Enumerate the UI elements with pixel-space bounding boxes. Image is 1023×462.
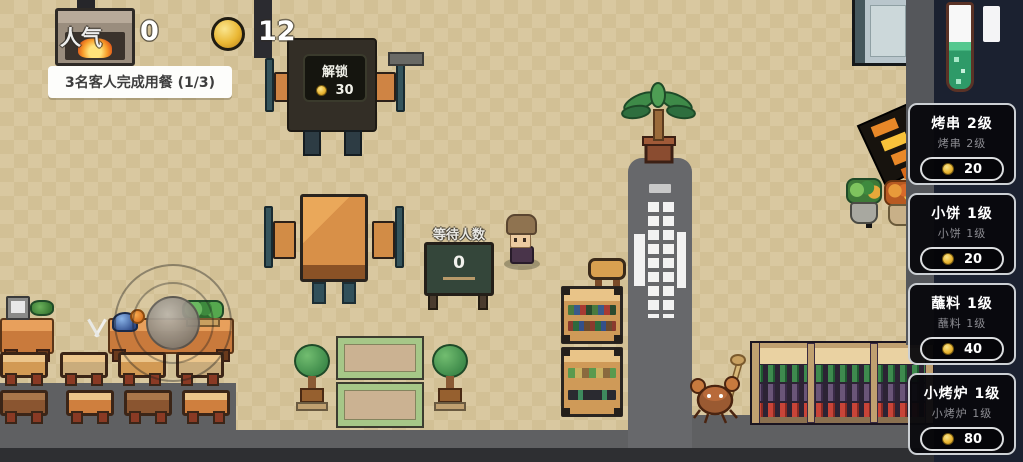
table-leg bbox=[342, 282, 356, 304]
upgrade-title: 蘸料 1级 bbox=[910, 293, 1014, 313]
upgrade-subtitle: 小饼 1级 bbox=[910, 225, 1014, 241]
shelf-post bbox=[614, 348, 622, 356]
upgrade-buy-button[interactable]: 40 bbox=[920, 337, 1004, 361]
upgrade-cost: 20 bbox=[964, 162, 982, 177]
window-pane-column bbox=[648, 202, 659, 318]
shelf-post bbox=[562, 348, 570, 356]
upgrade-buy-button[interactable]: 80 bbox=[920, 427, 1004, 451]
player-eye bbox=[514, 238, 517, 242]
shelf bbox=[561, 347, 623, 417]
shelf-rail bbox=[752, 417, 933, 423]
shelf-post bbox=[870, 343, 878, 423]
floor-edge-strip bbox=[0, 448, 934, 462]
game-viewport: 解锁 30 等待人数 0 bbox=[0, 0, 1023, 462]
joystick-knob[interactable] bbox=[146, 296, 200, 350]
shelf-post bbox=[614, 287, 622, 295]
vial-bubble bbox=[961, 69, 965, 73]
table bbox=[0, 352, 48, 378]
chair-back bbox=[395, 206, 404, 268]
coin-icon bbox=[942, 253, 954, 265]
notification-banner: 3名客人完成用餐 (1/3) bbox=[48, 66, 232, 98]
popularity-value: 0 bbox=[140, 16, 159, 47]
shelf-post bbox=[614, 335, 622, 343]
shelf-post bbox=[614, 408, 622, 416]
shelf-post bbox=[752, 343, 760, 423]
unlock-cost: 30 bbox=[335, 83, 353, 98]
bottle-row-green bbox=[756, 365, 929, 382]
potted-plant-bush bbox=[294, 344, 330, 378]
upgrade-cost: 80 bbox=[964, 432, 982, 447]
vial-bubble bbox=[954, 57, 959, 62]
locked-table-leg bbox=[344, 130, 362, 156]
mat-inner bbox=[344, 390, 416, 420]
corridor bbox=[628, 158, 692, 462]
coin-icon bbox=[942, 433, 954, 445]
counter bbox=[0, 318, 54, 354]
vent bbox=[388, 52, 424, 66]
upgrade-cost: 20 bbox=[964, 252, 982, 267]
waiting-label: 等待人数 bbox=[422, 224, 496, 243]
shelf-items bbox=[568, 321, 616, 331]
upgrade-cost: 40 bbox=[964, 342, 982, 357]
green-mat bbox=[336, 336, 424, 380]
unlock-sign[interactable]: 解锁 30 bbox=[303, 54, 367, 102]
unlock-label: 解锁 bbox=[305, 61, 365, 80]
shelf-items bbox=[568, 390, 616, 400]
upgrade-title: 小烤炉 1级 bbox=[910, 383, 1014, 403]
upgrade-buy-button[interactable]: 20 bbox=[920, 247, 1004, 271]
crab-critter bbox=[686, 352, 756, 430]
upgrade-panel-zhanliao[interactable]: 蘸料 1级 蘸料 1级 40 bbox=[908, 283, 1016, 365]
table bbox=[0, 390, 48, 416]
window-side-pane bbox=[634, 234, 645, 286]
chair-seat bbox=[372, 221, 395, 259]
shelf-back-panel bbox=[756, 347, 929, 364]
coin-icon bbox=[316, 85, 327, 96]
wall-tag bbox=[649, 184, 671, 193]
popularity-label: 人气 bbox=[60, 22, 102, 52]
window-pane-column bbox=[663, 202, 674, 318]
chair-back bbox=[264, 206, 273, 268]
greens-basket bbox=[30, 300, 54, 316]
coins-value: 12 bbox=[258, 16, 296, 47]
coin-icon bbox=[211, 17, 245, 51]
progress-vial bbox=[946, 2, 974, 92]
mat-inner bbox=[344, 344, 416, 372]
table bbox=[66, 390, 114, 416]
basket-pot bbox=[850, 202, 878, 224]
chalk-smudge bbox=[443, 277, 475, 280]
upgrade-subtitle: 蘸料 1级 bbox=[910, 315, 1014, 331]
window-side-pane bbox=[677, 232, 686, 288]
player-hair bbox=[506, 214, 537, 235]
vial-bubble bbox=[956, 79, 961, 84]
chair-back bbox=[396, 58, 405, 112]
plant-pot bbox=[300, 388, 324, 403]
plant-trunk bbox=[308, 376, 316, 388]
table bbox=[124, 390, 172, 416]
potted-plant-bush bbox=[432, 344, 468, 378]
shelf-post bbox=[562, 408, 570, 416]
indicator-bar bbox=[983, 6, 1000, 42]
waiting-board: 0 bbox=[424, 242, 494, 296]
plant-trunk bbox=[446, 376, 454, 388]
player-eye bbox=[523, 238, 526, 242]
waiting-count: 0 bbox=[427, 253, 491, 273]
shelf-post bbox=[562, 335, 570, 343]
table bbox=[182, 390, 230, 416]
shelf-items bbox=[568, 305, 616, 315]
fruit-basket-green bbox=[846, 178, 882, 204]
fridge-side bbox=[855, 0, 865, 63]
stool bbox=[588, 258, 626, 280]
upgrade-panel-xiaokaolu[interactable]: 小烤炉 1级 小烤炉 1级 80 bbox=[908, 373, 1016, 455]
shelf-post bbox=[807, 343, 815, 423]
table-leg bbox=[312, 282, 326, 304]
bottle-row-dark bbox=[756, 384, 929, 401]
upgrade-subtitle: 烤串 2级 bbox=[910, 135, 1014, 151]
locked-table-leg bbox=[303, 130, 321, 156]
table bbox=[60, 352, 108, 378]
green-mat bbox=[336, 382, 424, 428]
coin-icon bbox=[942, 343, 954, 355]
upgrade-panel-xiaobing[interactable]: 小饼 1级 小饼 1级 20 bbox=[908, 193, 1016, 275]
plant-base bbox=[296, 402, 328, 411]
plant-base bbox=[434, 402, 466, 411]
chair-seat bbox=[273, 221, 296, 259]
upgrade-subtitle: 小烤炉 1级 bbox=[910, 405, 1014, 421]
upgrade-buy-button[interactable]: 20 bbox=[920, 157, 1004, 181]
dining-table-apron bbox=[303, 265, 365, 279]
palm-tree bbox=[618, 82, 696, 170]
fridge-door bbox=[870, 5, 906, 57]
player-body bbox=[510, 246, 534, 264]
chair-back bbox=[265, 58, 274, 112]
upgrade-panel-kaochuan[interactable]: 烤串 2级 烤串 2级 20 bbox=[908, 103, 1016, 185]
coin-icon bbox=[942, 163, 954, 175]
shelf-items bbox=[568, 368, 616, 378]
shelf-post bbox=[562, 287, 570, 295]
plant-pot bbox=[438, 388, 462, 403]
fridge bbox=[852, 0, 912, 66]
shelf bbox=[561, 286, 623, 344]
upgrade-title: 烤串 2级 bbox=[910, 113, 1014, 133]
monitor-screen bbox=[11, 301, 25, 313]
upgrade-title: 小饼 1级 bbox=[910, 203, 1014, 223]
